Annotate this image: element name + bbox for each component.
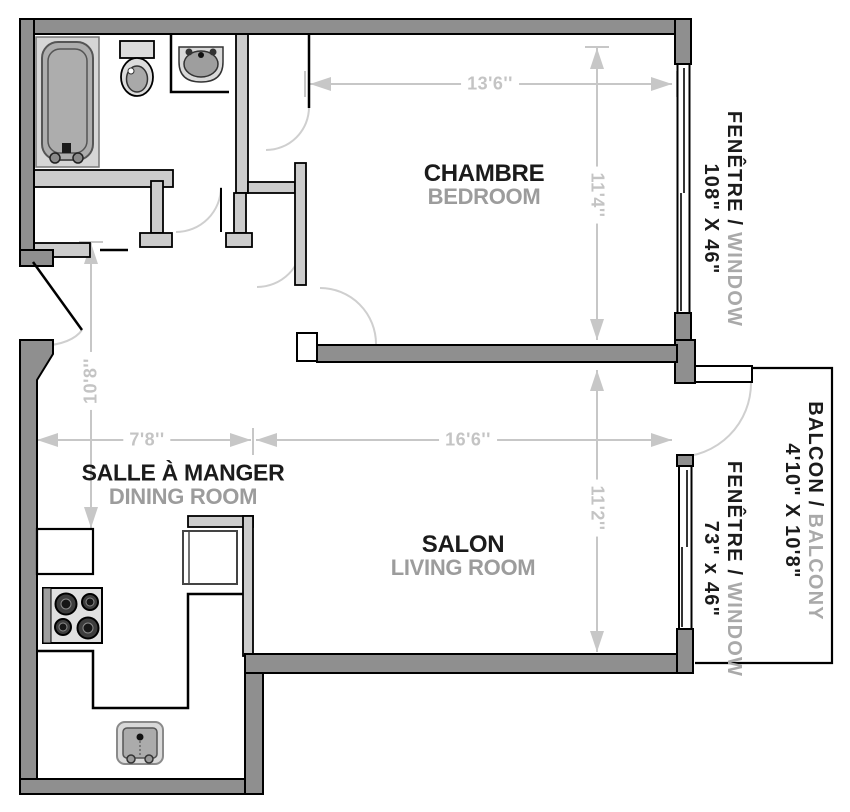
bedroom-door-jamb [297,333,317,361]
bathtub [36,37,99,167]
bedroom-window-label-name: FENÊTRE /WINDOW [722,111,745,327]
bedroom-window-label-fr: FENÊTRE / [723,111,745,226]
bedroom-closet-door-swing [266,107,309,150]
toilet [120,41,154,96]
balcony-label-size: 4'10" X 10'8" [780,401,803,621]
dining-room-label-en: DINING ROOM [109,484,257,510]
outer-walls [20,19,695,794]
balcony-label-en: BALCONY [804,513,826,620]
balcony-door-leaf [695,366,752,382]
dim-living-depth-label: 11'2'' [587,480,608,537]
bedroom-window-label-size: 108" X 46" [699,111,722,327]
stove [43,588,102,643]
dining-room-label-fr: SALLE À MANGER [82,460,285,487]
balcony-door-swing [677,383,751,457]
door-swings [42,107,751,457]
kitchen-counter-cabinet [37,529,93,574]
dim-bedroom-depth-label: 11'4'' [587,167,608,224]
living-window-label-size: 73" x 46" [699,461,722,677]
floor-plan: CHAMBRE BEDROOM SALON LIVING ROOM SALLE … [0,0,850,812]
dim-living-width-label: 16'6'' [439,430,497,451]
dim-entry-wall-label: 10'8'' [81,352,102,410]
living-window-label-fr: FENÊTRE / [723,461,745,576]
living-window [679,466,692,629]
refrigerator [183,531,237,584]
balcony-label: BALCON /BALCONY 4'10" X 10'8" [780,401,826,621]
balcony-label-name: BALCON /BALCONY [803,401,826,621]
entry-door-leaf [33,262,82,330]
living-room-label-en: LIVING ROOM [391,555,536,581]
bathroom-door-swing [176,187,221,232]
bathroom-sink [179,47,223,82]
bedroom-door-swing [320,288,376,344]
bedroom-window-label: FENÊTRE /WINDOW 108" X 46" [699,111,745,327]
living-window-label-name: FENÊTRE /WINDOW [722,461,745,677]
living-window-label: FENÊTRE /WINDOW 73" x 46" [699,461,745,677]
bedroom-window-label-en: WINDOW [723,232,745,327]
bedroom-label-en: BEDROOM [428,184,541,210]
balcony-label-fr: BALCON / [804,401,826,507]
dim-bedroom-width-label: 13'6'' [461,74,519,95]
kitchen-sink [117,722,163,764]
living-window-label-en: WINDOW [723,582,745,677]
dim-dining-width-label: 7'8'' [123,430,170,451]
bedroom-window [678,64,690,313]
